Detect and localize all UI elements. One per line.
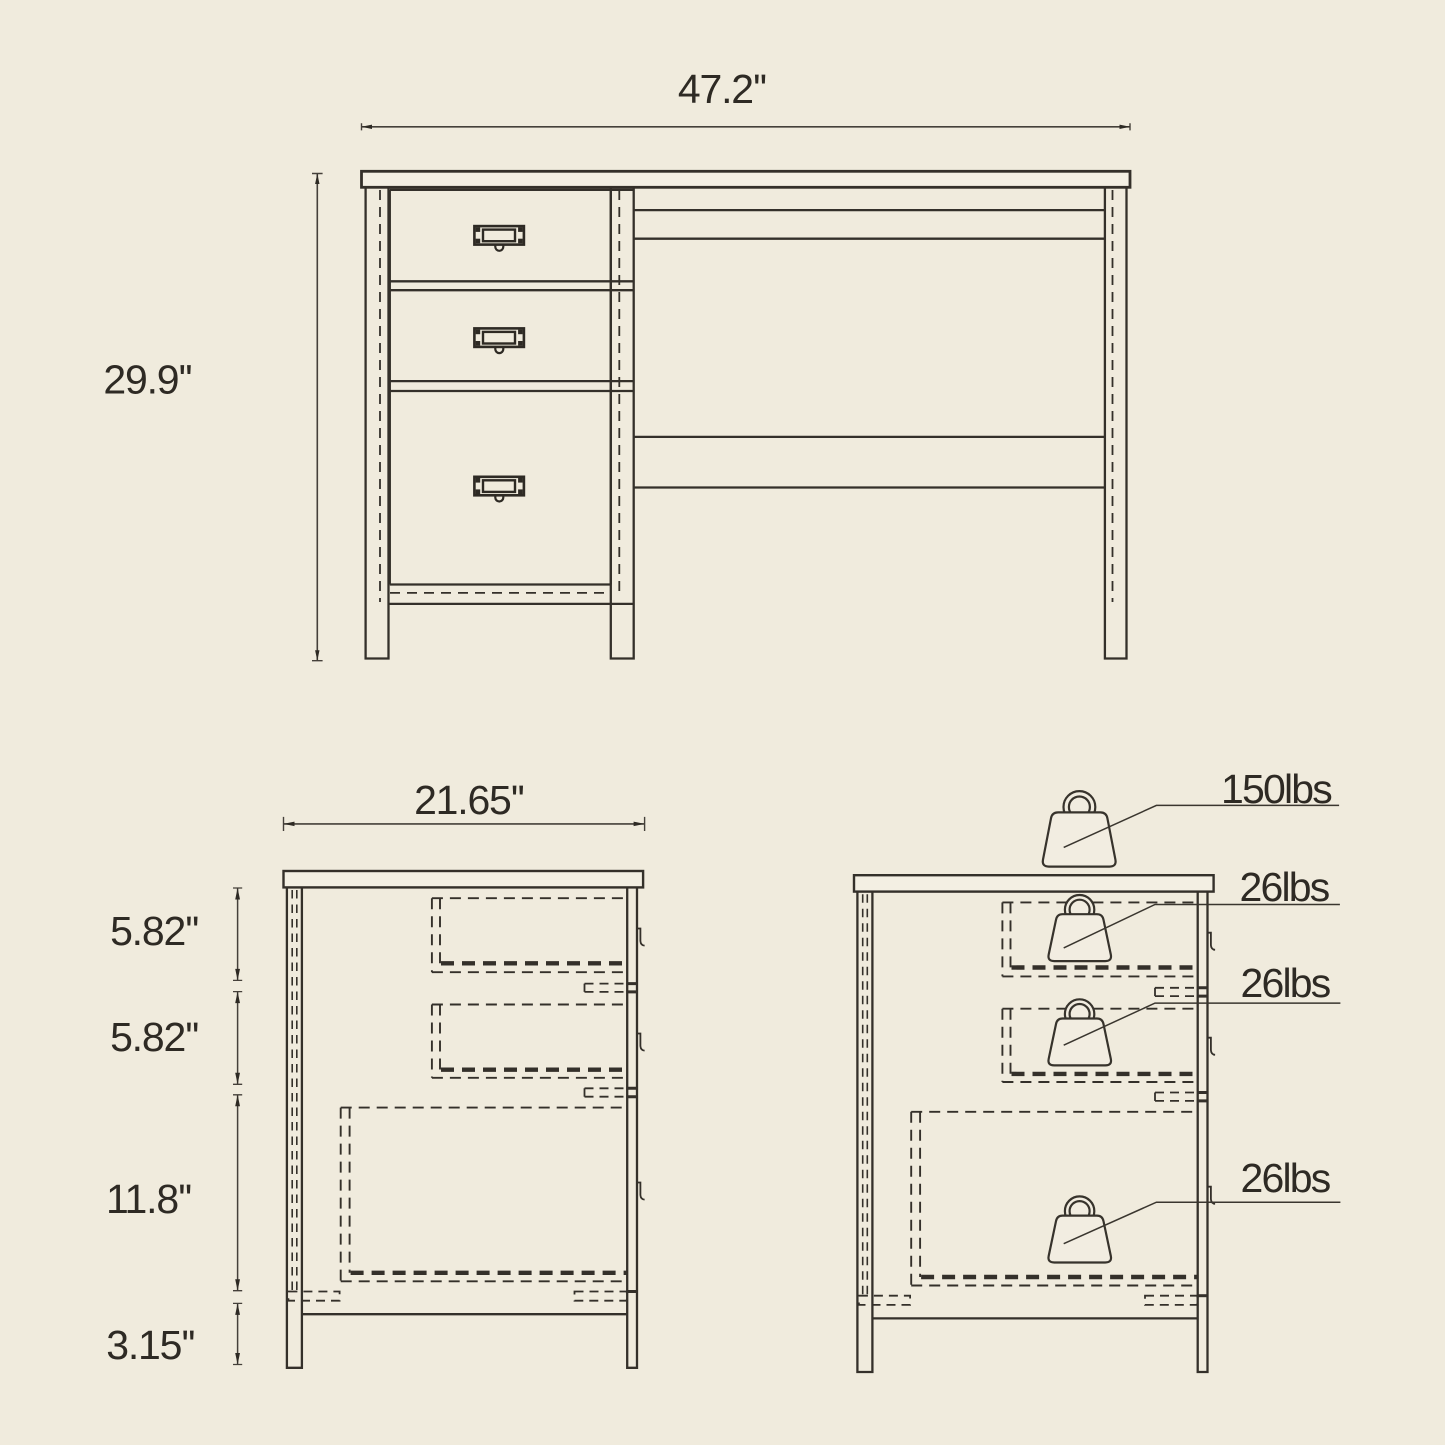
svg-text:3.15'': 3.15'' bbox=[106, 1322, 194, 1368]
svg-text:150lbs: 150lbs bbox=[1221, 766, 1332, 812]
svg-text:26lbs: 26lbs bbox=[1240, 960, 1330, 1006]
svg-text:47.2'': 47.2'' bbox=[678, 66, 766, 112]
svg-text:29.9'': 29.9'' bbox=[103, 357, 191, 403]
svg-text:26lbs: 26lbs bbox=[1239, 864, 1329, 910]
svg-text:5.82'': 5.82'' bbox=[110, 1014, 198, 1060]
svg-text:5.82'': 5.82'' bbox=[110, 908, 198, 954]
svg-text:26lbs: 26lbs bbox=[1240, 1155, 1330, 1201]
svg-text:21.65'': 21.65'' bbox=[414, 777, 524, 823]
svg-text:11.8'': 11.8'' bbox=[106, 1176, 191, 1222]
